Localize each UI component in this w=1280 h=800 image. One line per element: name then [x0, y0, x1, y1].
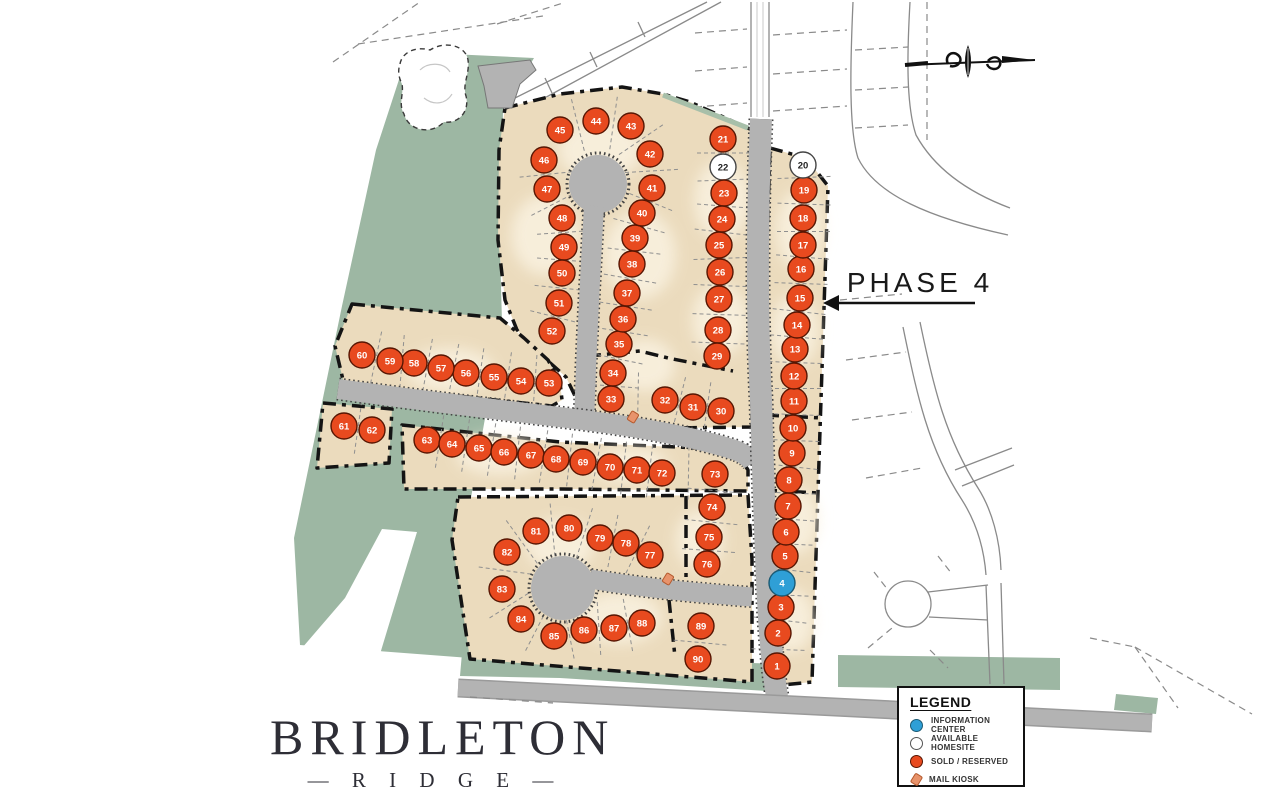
lot-marker-26[interactable]: 26 — [707, 259, 733, 285]
lot-marker-1[interactable]: 1 — [764, 653, 790, 679]
phase-label: PHASE 4 — [847, 267, 993, 298]
lot-number: 11 — [789, 396, 800, 407]
site-plan-page: 1234567891011121314151617181920212223242… — [0, 0, 1280, 800]
lot-number: 31 — [688, 402, 699, 413]
legend-item-label: MAIL KIOSK — [929, 775, 979, 784]
lot-marker-43[interactable]: 43 — [618, 113, 644, 139]
lot-marker-57[interactable]: 57 — [428, 355, 454, 381]
lot-number: 38 — [627, 259, 638, 270]
lot-marker-4[interactable]: 4 — [769, 570, 795, 596]
lot-number: 79 — [595, 533, 606, 544]
lot-number: 67 — [526, 450, 537, 461]
lot-number: 8 — [786, 475, 791, 486]
lot-number: 52 — [547, 326, 558, 337]
lot-marker-25[interactable]: 25 — [706, 232, 732, 258]
lot-number: 39 — [630, 233, 641, 244]
lot-number: 28 — [713, 325, 724, 336]
lot-number: 77 — [645, 550, 656, 561]
lot-number: 80 — [564, 523, 575, 534]
lot-marker-62[interactable]: 62 — [359, 417, 385, 443]
lot-number: 48 — [557, 213, 568, 224]
lot-marker-27[interactable]: 27 — [706, 286, 732, 312]
lot-marker-73[interactable]: 73 — [702, 461, 728, 487]
legend-item-info: INFORMATION CENTER — [910, 716, 1023, 734]
lot-marker-61[interactable]: 61 — [331, 413, 357, 439]
lot-marker-36[interactable]: 36 — [610, 306, 636, 332]
lot-number: 50 — [557, 268, 568, 279]
lot-number: 22 — [718, 162, 729, 173]
legend-item-label: SOLD / RESERVED — [931, 757, 1008, 766]
lot-marker-46[interactable]: 46 — [531, 147, 557, 173]
lot-number: 13 — [790, 344, 801, 355]
lot-number: 6 — [783, 527, 788, 538]
lot-number: 64 — [447, 439, 458, 450]
lot-marker-37[interactable]: 37 — [614, 280, 640, 306]
lot-marker-41[interactable]: 41 — [639, 175, 665, 201]
lot-marker-9[interactable]: 9 — [779, 440, 805, 466]
lot-number: 83 — [497, 584, 508, 595]
lot-number: 34 — [608, 368, 619, 379]
lot-number: 37 — [622, 288, 633, 299]
lot-marker-68[interactable]: 68 — [543, 446, 569, 472]
lot-marker-7[interactable]: 7 — [775, 493, 801, 519]
kiosk-swatch-icon — [910, 772, 923, 786]
lot-marker-52[interactable]: 52 — [539, 318, 565, 344]
lot-marker-56[interactable]: 56 — [453, 360, 479, 386]
lot-marker-35[interactable]: 35 — [606, 331, 632, 357]
lot-marker-58[interactable]: 58 — [401, 350, 427, 376]
legend-title: LEGEND — [910, 694, 1023, 710]
lot-marker-11[interactable]: 11 — [781, 388, 807, 414]
lot-number: 58 — [409, 358, 420, 369]
lot-marker-33[interactable]: 33 — [598, 386, 624, 412]
logo-title: BRIDLETON — [270, 712, 600, 762]
lot-marker-89[interactable]: 89 — [688, 613, 714, 639]
lot-number: 86 — [579, 625, 590, 636]
lot-marker-54[interactable]: 54 — [508, 368, 534, 394]
lot-number: 89 — [696, 621, 707, 632]
lot-marker-40[interactable]: 40 — [629, 200, 655, 226]
lot-number: 27 — [714, 294, 725, 305]
lot-marker-31[interactable]: 31 — [680, 394, 706, 420]
lot-number: 35 — [614, 339, 625, 350]
info-swatch-icon — [910, 719, 923, 732]
lot-marker-23[interactable]: 23 — [711, 180, 737, 206]
lot-number: 73 — [710, 469, 721, 480]
lot-number: 56 — [461, 368, 472, 379]
lot-number: 54 — [516, 376, 527, 387]
lot-marker-90[interactable]: 90 — [685, 646, 711, 672]
lot-number: 53 — [544, 378, 555, 389]
lot-number: 71 — [632, 465, 643, 476]
lot-marker-39[interactable]: 39 — [622, 225, 648, 251]
lot-marker-79[interactable]: 79 — [587, 525, 613, 551]
lot-number: 82 — [502, 547, 513, 558]
lot-marker-84[interactable]: 84 — [508, 606, 534, 632]
lot-marker-51[interactable]: 51 — [546, 290, 572, 316]
lot-marker-64[interactable]: 64 — [439, 431, 465, 457]
lot-number: 25 — [714, 240, 725, 251]
legend-item-kiosk: MAIL KIOSK — [910, 770, 1023, 788]
lot-number: 47 — [542, 184, 553, 195]
lot-marker-71[interactable]: 71 — [624, 457, 650, 483]
lot-number: 75 — [704, 532, 715, 543]
sold-swatch-icon — [910, 755, 923, 768]
lot-marker-83[interactable]: 83 — [489, 576, 515, 602]
lot-number: 72 — [657, 468, 668, 479]
lot-number: 2 — [775, 628, 780, 639]
lot-marker-55[interactable]: 55 — [481, 364, 507, 390]
lot-number: 42 — [645, 149, 656, 160]
lot-number: 17 — [798, 240, 809, 251]
lot-number: 70 — [605, 462, 616, 473]
logo-subtitle: — R I D G E — — [270, 768, 600, 793]
lot-number: 18 — [798, 213, 809, 224]
lot-marker-2[interactable]: 2 — [765, 620, 791, 646]
lot-number: 29 — [712, 351, 723, 362]
lot-number: 36 — [618, 314, 629, 325]
lot-marker-77[interactable]: 77 — [637, 542, 663, 568]
site-map: 1234567891011121314151617181920212223242… — [0, 0, 1280, 800]
lot-marker-32[interactable]: 32 — [652, 387, 678, 413]
lot-marker-80[interactable]: 80 — [556, 515, 582, 541]
lot-marker-76[interactable]: 76 — [694, 551, 720, 577]
lot-number: 9 — [789, 448, 794, 459]
lot-number: 33 — [606, 394, 617, 405]
lot-number: 43 — [626, 121, 637, 132]
lot-number: 41 — [647, 183, 658, 194]
available-swatch-icon — [910, 737, 923, 750]
lot-number: 14 — [792, 320, 803, 331]
lot-marker-8[interactable]: 8 — [776, 467, 802, 493]
lot-number: 20 — [798, 160, 809, 171]
lot-marker-45[interactable]: 45 — [547, 117, 573, 143]
lot-marker-5[interactable]: 5 — [772, 543, 798, 569]
lot-number: 78 — [621, 538, 632, 549]
lot-number: 74 — [707, 502, 718, 513]
lot-marker-60[interactable]: 60 — [349, 342, 375, 368]
lot-number: 61 — [339, 421, 350, 432]
lot-marker-34[interactable]: 34 — [600, 360, 626, 386]
lot-number: 10 — [788, 423, 799, 434]
lot-marker-69[interactable]: 69 — [570, 449, 596, 475]
lot-marker-70[interactable]: 70 — [597, 454, 623, 480]
lot-number: 40 — [637, 208, 648, 219]
lot-marker-75[interactable]: 75 — [696, 524, 722, 550]
lot-marker-53[interactable]: 53 — [536, 370, 562, 396]
lot-number: 3 — [778, 602, 783, 613]
compass-icon — [905, 45, 1035, 78]
lot-marker-87[interactable]: 87 — [601, 615, 627, 641]
lot-number: 23 — [719, 188, 730, 199]
lot-marker-16[interactable]: 16 — [788, 256, 814, 282]
lot-number: 7 — [785, 501, 790, 512]
lot-number: 5 — [782, 551, 788, 562]
lot-marker-12[interactable]: 12 — [781, 363, 807, 389]
lot-number: 15 — [795, 293, 806, 304]
lot-number: 65 — [474, 443, 485, 454]
lot-marker-65[interactable]: 65 — [466, 435, 492, 461]
lot-number: 49 — [559, 242, 570, 253]
lot-number: 90 — [693, 654, 704, 665]
lot-marker-30[interactable]: 30 — [708, 398, 734, 424]
lot-number: 24 — [717, 214, 728, 225]
lot-marker-19[interactable]: 19 — [791, 177, 817, 203]
lot-marker-88[interactable]: 88 — [629, 610, 655, 636]
lot-number: 59 — [385, 356, 396, 367]
lot-marker-28[interactable]: 28 — [705, 317, 731, 343]
lot-number: 19 — [799, 185, 810, 196]
lot-number: 85 — [549, 631, 560, 642]
lot-number: 1 — [774, 661, 780, 672]
lot-marker-50[interactable]: 50 — [549, 260, 575, 286]
lot-marker-18[interactable]: 18 — [790, 205, 816, 231]
lot-number: 32 — [660, 395, 671, 406]
pond — [399, 45, 469, 130]
community-logo: BRIDLETON — R I D G E — — [270, 712, 600, 793]
lot-number: 44 — [591, 116, 602, 127]
lot-number: 60 — [357, 350, 368, 361]
lot-marker-10[interactable]: 10 — [780, 415, 806, 441]
lot-marker-20[interactable]: 20 — [790, 152, 816, 178]
lot-number: 57 — [436, 363, 447, 374]
lot-number: 69 — [578, 457, 589, 468]
lot-marker-44[interactable]: 44 — [583, 108, 609, 134]
lot-marker-14[interactable]: 14 — [784, 312, 810, 338]
legend-item-label: INFORMATION CENTER — [931, 716, 1023, 734]
lot-marker-63[interactable]: 63 — [414, 427, 440, 453]
lot-marker-66[interactable]: 66 — [491, 439, 517, 465]
legend-item-available: AVAILABLE HOMESITE — [910, 734, 1023, 752]
lot-marker-72[interactable]: 72 — [649, 460, 675, 486]
lot-number: 4 — [779, 578, 785, 589]
lot-marker-82[interactable]: 82 — [494, 539, 520, 565]
lot-marker-22[interactable]: 22 — [710, 154, 736, 180]
lot-marker-49[interactable]: 49 — [551, 234, 577, 260]
lot-marker-85[interactable]: 85 — [541, 623, 567, 649]
legend-item-label: AVAILABLE HOMESITE — [931, 734, 1023, 752]
lot-marker-74[interactable]: 74 — [699, 494, 725, 520]
lot-marker-48[interactable]: 48 — [549, 205, 575, 231]
lot-marker-21[interactable]: 21 — [710, 126, 736, 152]
lot-number: 46 — [539, 155, 550, 166]
lot-marker-67[interactable]: 67 — [518, 442, 544, 468]
lot-marker-15[interactable]: 15 — [787, 285, 813, 311]
lot-marker-3[interactable]: 3 — [768, 594, 794, 620]
legend-item-sold: SOLD / RESERVED — [910, 752, 1023, 770]
lot-marker-24[interactable]: 24 — [709, 206, 735, 232]
phase-callout: PHASE 4 — [823, 267, 993, 311]
legend: LEGEND INFORMATION CENTERAVAILABLE HOMES… — [897, 686, 1025, 787]
lot-number: 51 — [554, 298, 565, 309]
lot-marker-29[interactable]: 29 — [704, 343, 730, 369]
lot-marker-47[interactable]: 47 — [534, 176, 560, 202]
lot-number: 21 — [718, 134, 729, 145]
lot-number: 68 — [551, 454, 562, 465]
lot-number: 63 — [422, 435, 433, 446]
lot-marker-78[interactable]: 78 — [613, 530, 639, 556]
lot-marker-38[interactable]: 38 — [619, 251, 645, 277]
lot-number: 16 — [796, 264, 807, 275]
lot-number: 30 — [716, 406, 727, 417]
lot-marker-81[interactable]: 81 — [523, 518, 549, 544]
lot-marker-86[interactable]: 86 — [571, 617, 597, 643]
lot-number: 76 — [702, 559, 713, 570]
lot-number: 87 — [609, 623, 620, 634]
lot-number: 55 — [489, 372, 500, 383]
lot-marker-59[interactable]: 59 — [377, 348, 403, 374]
lot-number: 62 — [367, 425, 378, 436]
lot-number: 66 — [499, 447, 510, 458]
lot-marker-13[interactable]: 13 — [782, 336, 808, 362]
lot-number: 88 — [637, 618, 648, 629]
lot-marker-42[interactable]: 42 — [637, 141, 663, 167]
lot-marker-6[interactable]: 6 — [773, 519, 799, 545]
lot-number: 45 — [555, 125, 566, 136]
lot-number: 12 — [789, 371, 800, 382]
lot-number: 81 — [531, 526, 542, 537]
lot-number: 26 — [715, 267, 726, 278]
lot-number: 84 — [516, 614, 527, 625]
lot-marker-17[interactable]: 17 — [790, 232, 816, 258]
